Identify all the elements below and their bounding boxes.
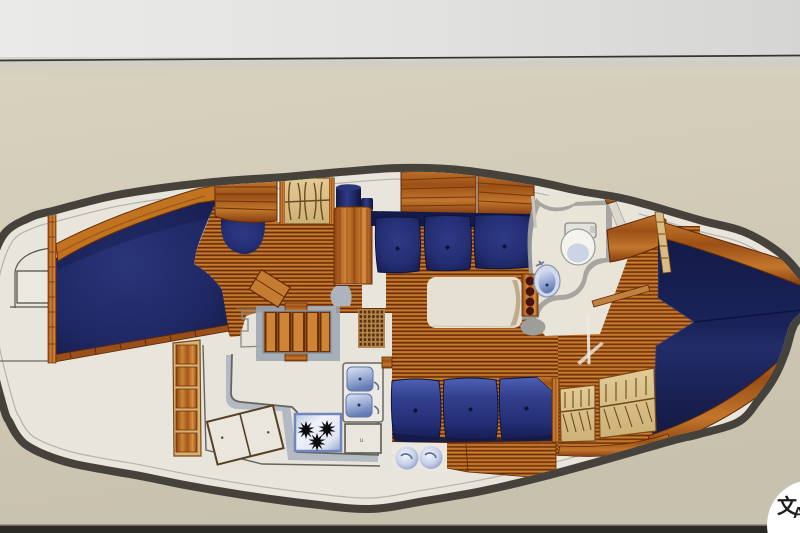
svg-text:A: A <box>793 505 800 522</box>
svg-text:u: u <box>360 438 363 444</box>
